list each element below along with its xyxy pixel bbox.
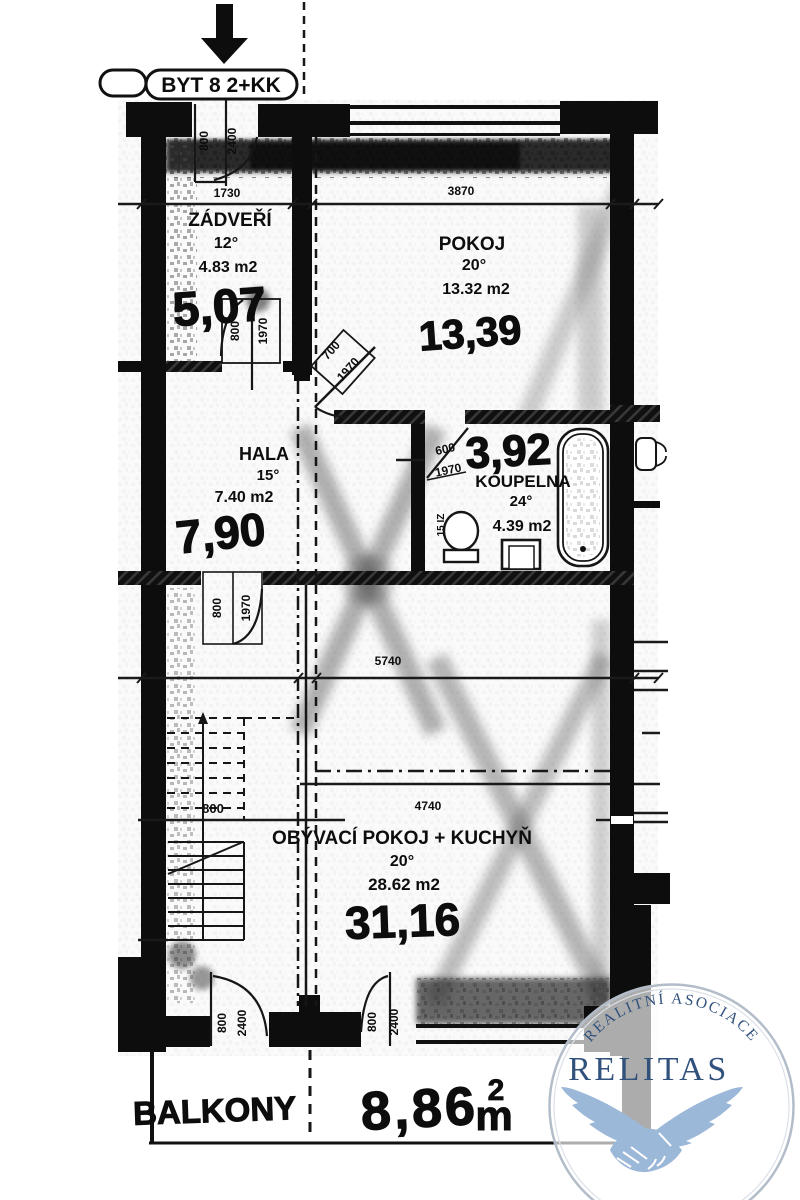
svg-text:3,92: 3,92 bbox=[464, 425, 552, 478]
svg-text:800: 800 bbox=[202, 801, 224, 816]
svg-text:2400: 2400 bbox=[235, 1009, 249, 1036]
svg-text:BYT 8 2+KK: BYT 8 2+KK bbox=[161, 74, 281, 97]
svg-text:1730: 1730 bbox=[214, 186, 241, 200]
svg-text:HALA: HALA bbox=[239, 444, 289, 464]
svg-text:31,16: 31,16 bbox=[344, 893, 461, 949]
svg-text:28.62 m2: 28.62 m2 bbox=[368, 875, 440, 894]
svg-text:3870: 3870 bbox=[448, 184, 475, 198]
svg-text:800: 800 bbox=[210, 598, 224, 618]
svg-text:2: 2 bbox=[488, 1074, 505, 1107]
svg-text:4.83 m2: 4.83 m2 bbox=[199, 259, 258, 276]
svg-text:8,86: 8,86 bbox=[359, 1076, 479, 1142]
svg-text:12°: 12° bbox=[214, 235, 238, 252]
svg-text:15°: 15° bbox=[257, 467, 280, 484]
svg-text:13,39: 13,39 bbox=[417, 307, 523, 360]
svg-text:4740: 4740 bbox=[415, 799, 442, 813]
svg-text:4.39 m2: 4.39 m2 bbox=[493, 518, 552, 535]
svg-text:24°: 24° bbox=[510, 493, 533, 510]
svg-text:2400: 2400 bbox=[387, 1008, 401, 1035]
svg-text:5,07: 5,07 bbox=[171, 278, 268, 337]
svg-text:2400: 2400 bbox=[225, 127, 239, 154]
svg-text:800: 800 bbox=[215, 1013, 229, 1033]
svg-text:5740: 5740 bbox=[375, 654, 402, 668]
svg-text:RELITAS: RELITAS bbox=[568, 1051, 730, 1088]
svg-text:ZÁDVEŘÍ: ZÁDVEŘÍ bbox=[188, 209, 272, 231]
svg-text:20°: 20° bbox=[390, 853, 414, 870]
svg-text:13.32 m2: 13.32 m2 bbox=[442, 281, 510, 298]
svg-text:7,90: 7,90 bbox=[173, 503, 267, 564]
svg-text:800: 800 bbox=[365, 1012, 379, 1032]
svg-text:OBÝVACÍ POKOJ + KUCHYŇ: OBÝVACÍ POKOJ + KUCHYŇ bbox=[272, 827, 532, 849]
svg-text:1970: 1970 bbox=[239, 594, 253, 621]
svg-text:800: 800 bbox=[197, 131, 211, 151]
svg-text:7.40 m2: 7.40 m2 bbox=[215, 489, 274, 506]
svg-text:POKOJ: POKOJ bbox=[439, 234, 506, 255]
svg-text:BALKONY: BALKONY bbox=[132, 1089, 296, 1132]
svg-text:15 IZ: 15 IZ bbox=[436, 514, 447, 537]
svg-text:20°: 20° bbox=[462, 257, 486, 274]
